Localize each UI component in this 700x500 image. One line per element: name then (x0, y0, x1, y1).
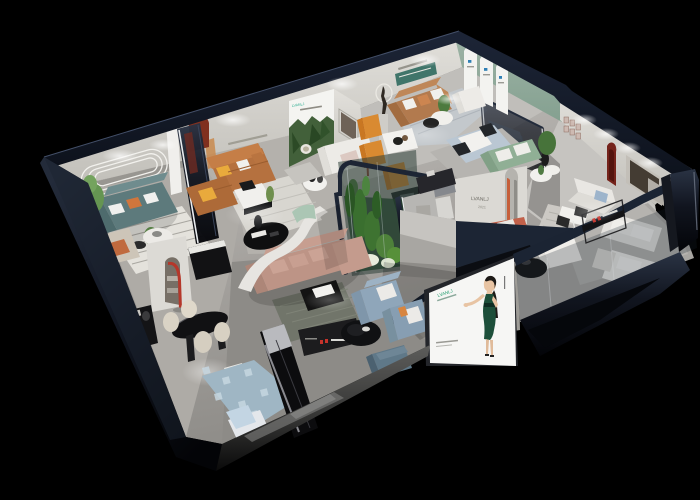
svg-text:LVANLJ: LVANLJ (471, 196, 489, 203)
svg-text:2021: 2021 (478, 205, 486, 209)
